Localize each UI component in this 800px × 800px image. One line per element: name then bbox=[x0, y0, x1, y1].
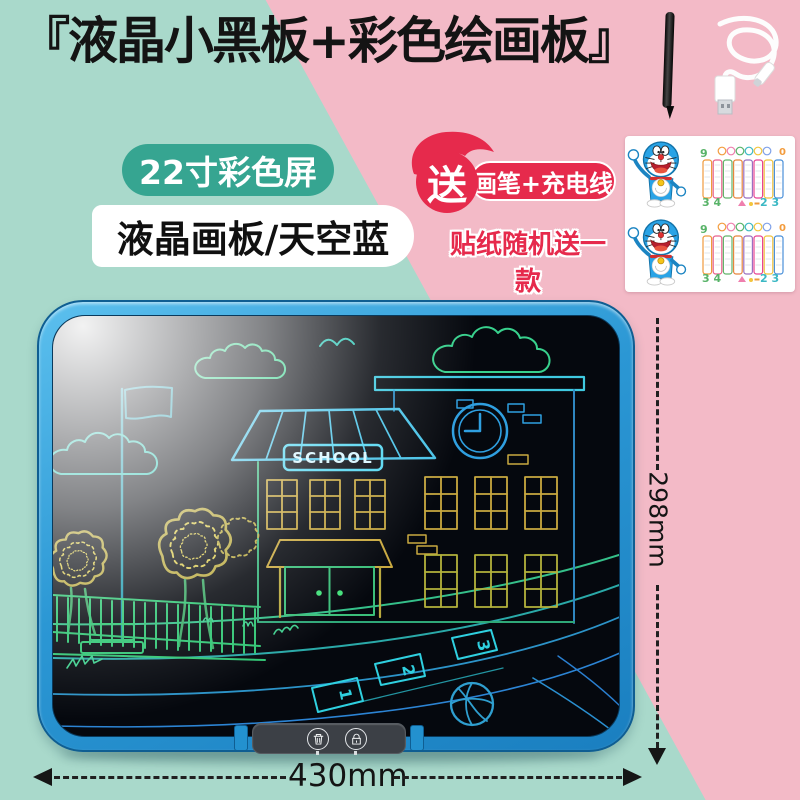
gift-note: 贴纸随机送一款 bbox=[438, 224, 618, 298]
height-dash-line-bottom bbox=[656, 585, 659, 748]
screen-size-label: 22寸彩色屏 bbox=[139, 146, 317, 194]
height-dash-line-top bbox=[656, 318, 659, 470]
product-promo-image: 9 0 bbox=[0, 0, 800, 800]
tablet-screen[interactable]: SCHOOL 1 2 3 bbox=[52, 315, 620, 737]
stylus-pen-icon bbox=[662, 12, 674, 108]
gift-items-label: 画笔+充电线 bbox=[473, 164, 613, 199]
button-stem bbox=[354, 751, 357, 755]
hopscotch-number-1: 1 bbox=[335, 687, 356, 702]
width-arrow-left-icon bbox=[33, 768, 52, 786]
stylus-tip-icon bbox=[666, 106, 674, 119]
delete-button[interactable] bbox=[307, 728, 329, 750]
product-spec-box: 液晶画板/天空蓝 bbox=[92, 205, 414, 267]
gift-badge: 送 bbox=[416, 151, 478, 213]
doraemon-sticker-icon bbox=[627, 217, 693, 289]
gift-items-badge: 画笔+充电线 bbox=[470, 161, 616, 201]
width-dimension-label: 430mm bbox=[288, 758, 390, 794]
lock-icon bbox=[350, 733, 363, 746]
page-title: 『液晶小黑板+彩色绘画板』 bbox=[2, 10, 654, 72]
hopscotch-number-2: 2 bbox=[398, 663, 419, 678]
usb-cable-icon bbox=[686, 10, 798, 126]
screen-drawing: SCHOOL 1 2 3 bbox=[53, 316, 620, 737]
doraemon-sticker-icon bbox=[627, 139, 693, 211]
width-dash-line-left bbox=[54, 776, 286, 779]
frame-clip-right bbox=[410, 725, 424, 751]
lcd-writing-tablet: SCHOOL 1 2 3 bbox=[37, 300, 635, 752]
school-sign-text: SCHOOL bbox=[292, 449, 373, 467]
product-spec-label: 液晶画板/天空蓝 bbox=[117, 209, 390, 263]
multiplication-table-sticker-icon bbox=[695, 144, 791, 208]
height-dimension-label: 298mm bbox=[644, 464, 673, 576]
height-arrow-down-icon bbox=[648, 748, 666, 765]
width-dash-line-right bbox=[394, 776, 622, 779]
frame-clip-left bbox=[234, 725, 248, 751]
button-stem bbox=[316, 751, 319, 755]
width-arrow-right-icon bbox=[623, 768, 642, 786]
sticker-card bbox=[625, 136, 795, 292]
tablet-button-bar bbox=[252, 723, 406, 754]
lock-button[interactable] bbox=[345, 728, 367, 750]
trash-icon bbox=[312, 733, 325, 746]
multiplication-table-sticker-icon bbox=[695, 220, 791, 284]
gift-badge-label: 送 bbox=[427, 153, 467, 211]
screen-size-badge: 22寸彩色屏 bbox=[122, 144, 334, 196]
